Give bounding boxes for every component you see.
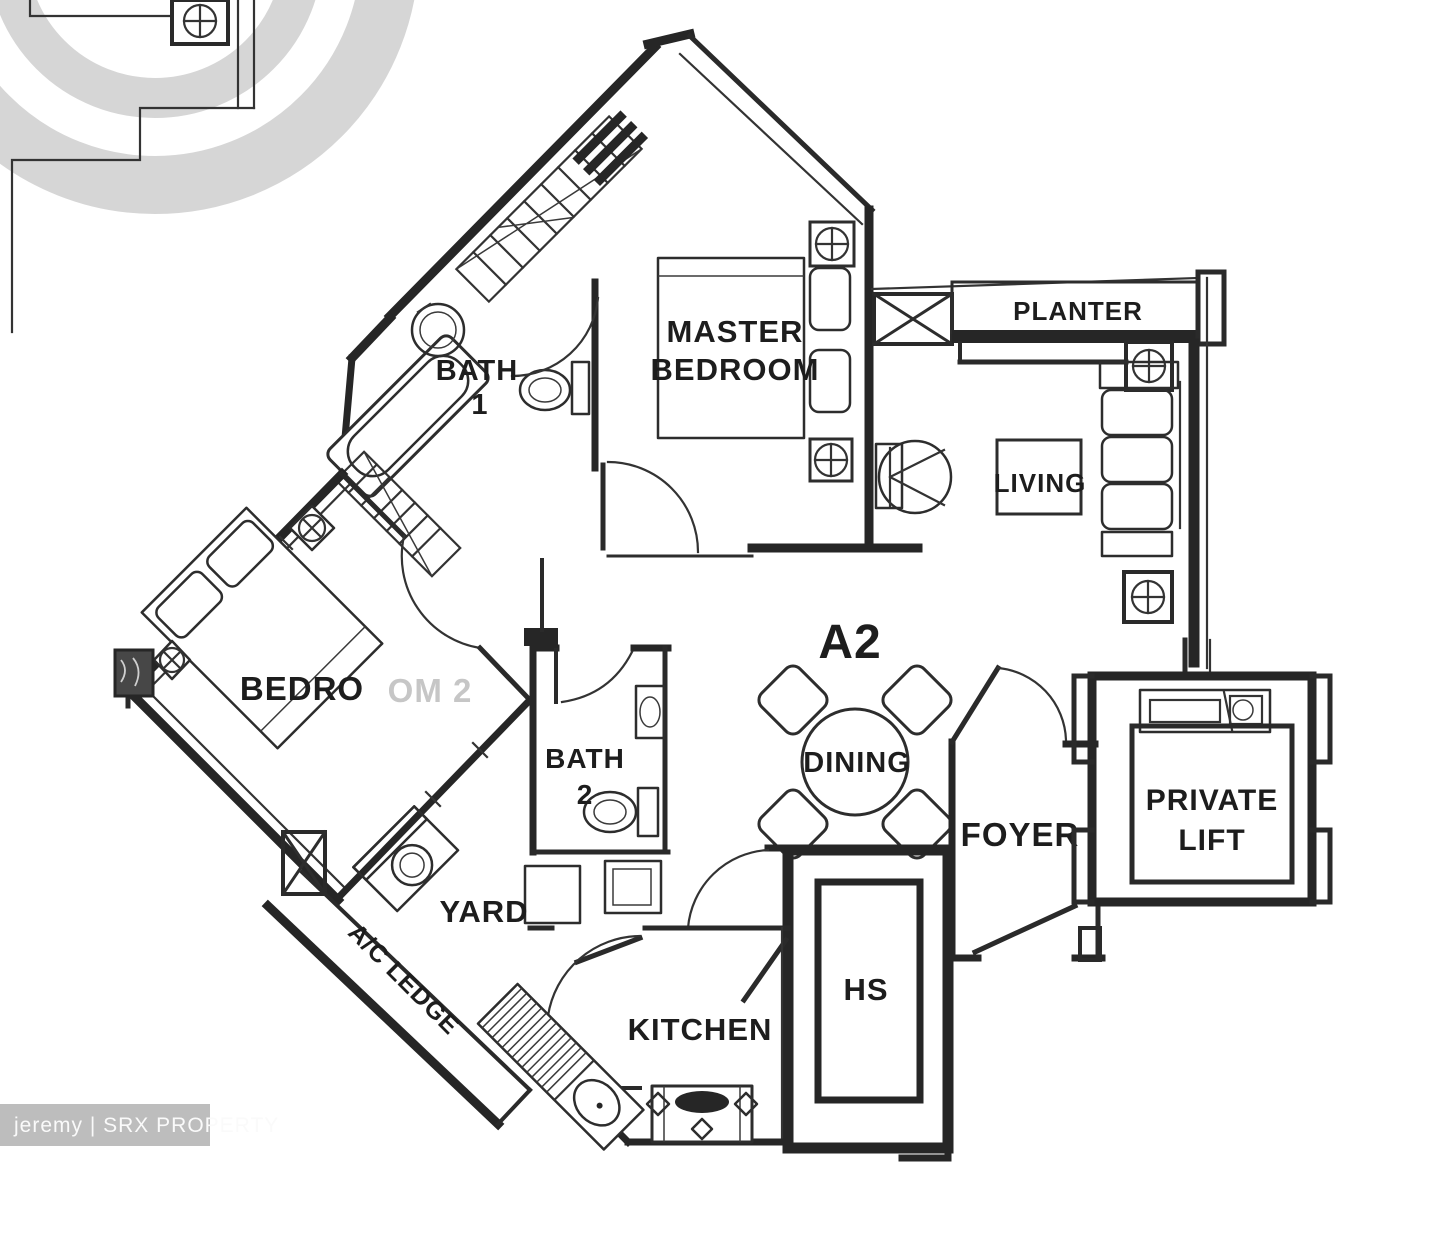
master-bedroom-label-line2: BEDROOM <box>651 352 820 387</box>
door-swing-icon <box>998 668 1066 740</box>
bath2-label-line1: BATH <box>545 743 625 774</box>
toilet-icon <box>584 788 658 836</box>
entrance-door-leaf-icon <box>975 906 1075 952</box>
kitchen: KITCHEN <box>478 928 788 1149</box>
floorplan-page: MASTER BEDROOM BATH 1 <box>0 0 1440 1250</box>
yard: YARD <box>353 806 661 929</box>
door-leaf-icon <box>952 668 998 742</box>
hs-label: HS <box>843 972 888 1007</box>
ac-ledge: A/C LEDGE <box>268 832 530 1124</box>
private-lift-label-line2: LIFT <box>1178 824 1245 857</box>
toilet-icon <box>520 362 589 414</box>
wardrobe-icon <box>456 110 648 301</box>
column-marker-icon <box>810 439 852 481</box>
bath1-label-line2: 1 <box>471 389 488 421</box>
floorplan-drawing: MASTER BEDROOM BATH 1 <box>0 0 1440 1250</box>
bath2-label-line2: 2 <box>577 779 594 810</box>
double-bed-icon <box>142 508 382 748</box>
living-label: LIVING <box>994 468 1087 498</box>
sink-icon <box>412 304 464 356</box>
dining-label: DINING <box>803 747 911 779</box>
column-marker-icon <box>1126 342 1172 390</box>
bedroom2-label-faded: OM 2 <box>388 672 473 709</box>
planter-label: PLANTER <box>1013 296 1143 326</box>
bath1-label-line1: BATH <box>436 355 518 387</box>
door-leaf-icon <box>744 940 786 1000</box>
watermark-badge: jeremy | SRX PROPERTY <box>0 1104 279 1146</box>
door-swing-icon <box>512 298 598 376</box>
vanity-icon <box>636 686 664 738</box>
unit-type-label: A2 <box>818 616 881 669</box>
door-swing-icon <box>688 850 768 928</box>
bath2: BATH 2 <box>524 560 668 852</box>
private-lift-label-line1: PRIVATE <box>1146 784 1279 817</box>
master-bedroom-label-line1: MASTER <box>667 314 804 349</box>
ac-ledge-box-icon <box>115 650 153 696</box>
watermark-credit: jeremy | SRX PROPERTY <box>13 1114 279 1137</box>
stove-icon <box>647 1086 757 1142</box>
door-swing-icon <box>562 652 632 702</box>
door-swing-icon <box>402 536 480 648</box>
cabinet-icon <box>605 861 661 913</box>
dining-area: A2 DINING <box>755 616 955 862</box>
door-swing-icon <box>608 462 698 552</box>
sofa-icon <box>1100 362 1180 556</box>
fan-coil-icon <box>876 441 951 513</box>
master-bedroom: MASTER BEDROOM <box>595 210 918 556</box>
column-marker-icon <box>290 506 334 550</box>
foyer-label: FOYER <box>961 816 1080 853</box>
planter: PLANTER <box>872 272 1224 344</box>
pillow-icon <box>810 268 850 330</box>
ac-ledge-label: A/C LEDGE <box>342 918 464 1040</box>
living-room: LIVING <box>876 343 1180 622</box>
private-lift: PRIVATE LIFT <box>1074 640 1330 902</box>
door-swing-icon <box>548 936 640 1016</box>
bedroom2-label: BEDRO <box>240 670 364 707</box>
column-marker-icon <box>810 222 854 266</box>
kitchen-label: KITCHEN <box>628 1012 773 1047</box>
column-marker-icon <box>1124 572 1172 622</box>
yard-label: YARD <box>440 894 529 929</box>
washer-icon <box>525 866 580 923</box>
watermark-logo <box>0 0 390 185</box>
